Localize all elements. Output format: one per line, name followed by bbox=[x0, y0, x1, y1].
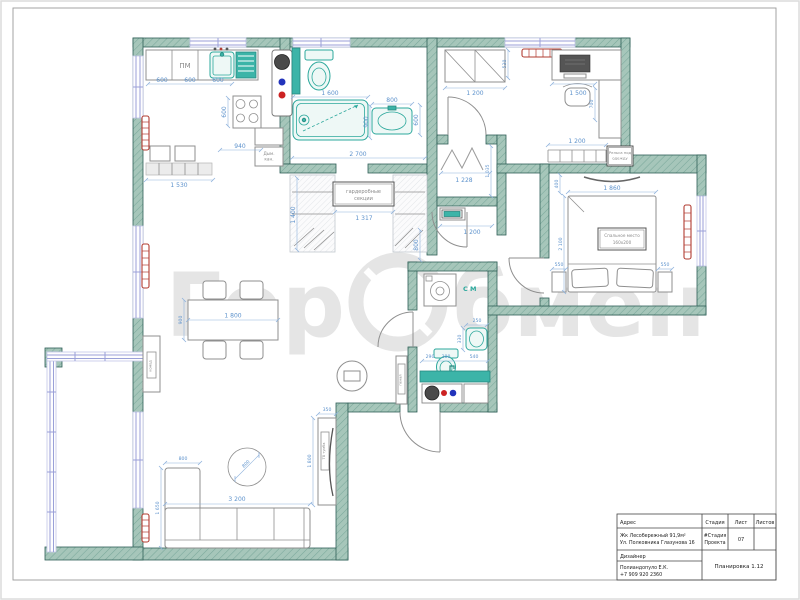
chair bbox=[203, 281, 226, 299]
dim: 1 035 bbox=[485, 164, 491, 177]
window-balcony-door bbox=[133, 412, 143, 508]
dim: 350 bbox=[323, 407, 332, 413]
coat-hooks-icon bbox=[441, 148, 483, 170]
corridor: пенал bbox=[337, 356, 407, 404]
bed-label-line1: Спальное место bbox=[604, 233, 640, 238]
wc-riser-icon bbox=[422, 384, 462, 403]
wardrobe-label-line1: гардеробные bbox=[346, 189, 381, 195]
dim: 2 100 bbox=[558, 237, 564, 250]
dim: 2 700 bbox=[349, 151, 366, 158]
bed-label-box: Спальное место 160x200 bbox=[598, 228, 646, 250]
window-bedroom-right bbox=[697, 196, 706, 266]
washbasin-icon bbox=[372, 106, 412, 134]
dim: 550 bbox=[555, 262, 564, 268]
rug: 800 bbox=[228, 448, 266, 486]
window-office-top bbox=[505, 38, 575, 47]
tv-console: ТВ тумба bbox=[318, 418, 336, 505]
rail-label-box: Рельса под одежду bbox=[607, 146, 633, 166]
dim: 600 bbox=[156, 77, 168, 84]
title-block: Адрес Стадия Лист Листов Жк Лесобережный… bbox=[617, 514, 776, 580]
dim: 1 228 bbox=[455, 177, 472, 184]
office: 1 200 530 1 500 700 1 200 bbox=[445, 50, 633, 166]
wardrobe-label-line2: секции bbox=[354, 196, 373, 202]
nightstand-right bbox=[658, 272, 672, 292]
door-entry bbox=[400, 412, 440, 452]
drying-rack-icon bbox=[236, 52, 256, 78]
dim: 1 400 bbox=[290, 206, 297, 223]
dim: 700 bbox=[589, 100, 595, 109]
office-wardrobe-cabinet bbox=[445, 50, 505, 82]
address-line1: Жк Лесобережный 91,9м² bbox=[620, 532, 686, 539]
drawing-name: Планировка 1.12 bbox=[715, 564, 764, 570]
sheet-value: 07 bbox=[738, 537, 744, 543]
chair bbox=[240, 281, 263, 299]
sofa bbox=[165, 468, 310, 548]
dim: 800 bbox=[386, 97, 398, 104]
sheet-label: Лист bbox=[735, 520, 748, 526]
dim: 330 bbox=[457, 335, 463, 344]
stage-label: Стадия bbox=[705, 520, 724, 526]
dim: 900 bbox=[363, 116, 370, 128]
kitchen-sink-icon bbox=[210, 48, 234, 78]
washer-label: С М bbox=[463, 285, 477, 293]
sheets-label: Листов bbox=[756, 520, 775, 526]
vent-duct-line1: Дым. bbox=[263, 151, 274, 156]
shower-panel bbox=[292, 48, 300, 94]
address-label: Адрес bbox=[620, 520, 636, 526]
vent-duct-box: Дым. кан. bbox=[255, 128, 283, 166]
dim: 550 bbox=[661, 262, 670, 268]
rail-label-line1: Рельса под bbox=[609, 150, 632, 155]
dim: 1 650 bbox=[155, 501, 161, 514]
wc-cabinet bbox=[464, 384, 488, 403]
dim: 1 500 bbox=[569, 90, 586, 97]
stage-value-line1: #Стадия bbox=[704, 533, 727, 539]
dim: 290 bbox=[426, 354, 435, 360]
dishwasher-label: ПМ bbox=[179, 62, 190, 70]
designer-phone: +7 909 920 2360 bbox=[620, 572, 662, 578]
dim: 1 200 bbox=[463, 229, 480, 236]
washing-machine-icon bbox=[424, 274, 456, 306]
window-kitchen-top bbox=[190, 38, 246, 47]
wardrobe-hall: гардеробные секции 1 400 1 317 bbox=[290, 175, 427, 252]
dim: 540 bbox=[470, 354, 479, 360]
door-office bbox=[448, 97, 486, 135]
round-table bbox=[337, 361, 367, 391]
dim: 1 530 bbox=[170, 182, 187, 189]
dim: 800 bbox=[179, 456, 188, 462]
console-cabinet: комод bbox=[143, 336, 160, 392]
stage-value-line2: Проекта bbox=[704, 540, 725, 546]
radiator-living bbox=[142, 244, 149, 288]
dim: 940 bbox=[234, 143, 246, 150]
vent-duct-line2: кан. bbox=[264, 157, 273, 162]
dim: 1 800 bbox=[307, 454, 313, 467]
bathroom: 1 600 800 900 600 2 700 bbox=[292, 48, 425, 158]
dim: 800 bbox=[241, 459, 251, 469]
shoe-shelf bbox=[440, 208, 465, 220]
dim: 380 bbox=[442, 354, 451, 360]
plumbing-riser-icon bbox=[272, 50, 292, 116]
wardrobe-right bbox=[393, 175, 427, 252]
tv-icon bbox=[584, 177, 640, 182]
dim: 400 bbox=[554, 180, 560, 189]
dim: 530 bbox=[502, 60, 508, 69]
dim: 600 bbox=[221, 106, 228, 118]
stove-icon bbox=[233, 96, 261, 128]
dim: 1 200 bbox=[466, 90, 483, 97]
tv-unit-label: ТВ тумба bbox=[322, 443, 326, 461]
bedroom: Спальное место 160x200 1 860 2 100 550 5… bbox=[552, 175, 672, 292]
dim: 900 bbox=[178, 316, 184, 325]
dim: 250 bbox=[473, 318, 482, 324]
chair bbox=[203, 341, 226, 359]
floor-plan-sheet: Гор бмен bbox=[0, 0, 800, 600]
dim: 600 bbox=[212, 77, 224, 84]
watermark-logo-swirl bbox=[366, 270, 430, 334]
cabinet-label: пенал bbox=[399, 374, 403, 385]
floor-plan-svg: Гор бмен bbox=[0, 0, 800, 600]
dim: 1 200 bbox=[568, 138, 585, 145]
radiator-kitchen bbox=[142, 116, 149, 150]
dim: 3 200 bbox=[228, 496, 245, 503]
dim: 1 317 bbox=[355, 215, 372, 222]
address-line2: Ул. Полковника Глазунова 16 bbox=[620, 540, 695, 546]
wc-basin-icon bbox=[466, 328, 487, 350]
radiator-bedroom bbox=[684, 205, 691, 259]
toilet-icon bbox=[305, 50, 333, 90]
kitchen-bench bbox=[146, 146, 212, 175]
kitchen: ПМ Дым. кан. bbox=[146, 48, 292, 189]
wardrobe-label-box: гардеробные секции bbox=[333, 182, 394, 206]
rail-label-line2: одежду bbox=[612, 156, 628, 161]
chair bbox=[240, 341, 263, 359]
window-bath-top bbox=[293, 38, 350, 47]
window-kitchen-left bbox=[133, 56, 143, 118]
dim: 1 800 bbox=[224, 313, 241, 320]
console-label: комод bbox=[149, 360, 153, 372]
clothes-rail-icon bbox=[548, 150, 606, 162]
balcony bbox=[47, 352, 143, 552]
dim: 600 bbox=[184, 77, 196, 84]
dim: 800 bbox=[413, 239, 420, 251]
dim: 1 600 bbox=[321, 90, 338, 97]
tall-cabinet: пенал bbox=[396, 356, 407, 404]
computer-icon bbox=[560, 55, 590, 72]
designer-label: Дизайнер bbox=[620, 553, 646, 560]
radiator-sofa bbox=[142, 514, 149, 542]
bed-label-line2: 160x200 bbox=[613, 240, 632, 245]
designer-name: Полиандопуло Е.К. bbox=[620, 565, 668, 571]
dim: 600 bbox=[413, 114, 420, 126]
dim: 1 860 bbox=[603, 185, 620, 192]
